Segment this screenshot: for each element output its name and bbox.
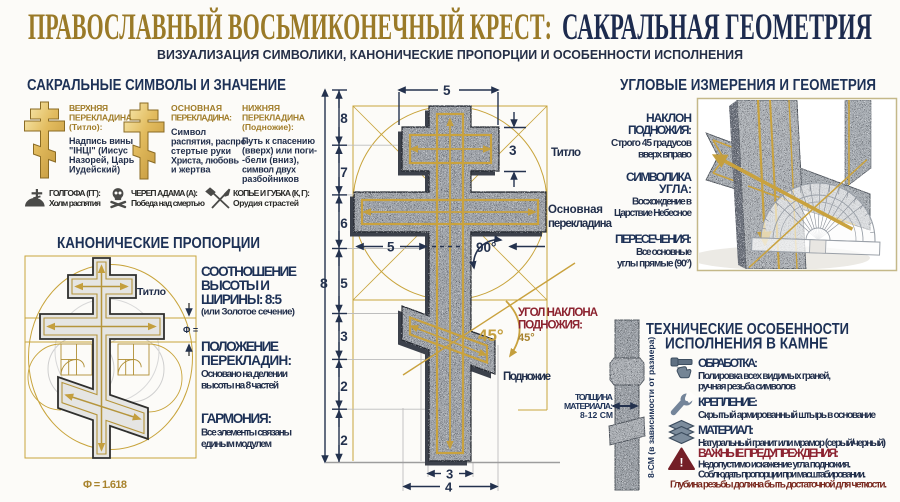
svg-text:8: 8 [340, 111, 348, 126]
svg-text:ВАЖНЫЕ ПРЕДУПРЕЖДЕНИЯ:: ВАЖНЫЕ ПРЕДУПРЕЖДЕНИЯ: [698, 446, 839, 460]
svg-text:Все основные: Все основные [636, 247, 692, 258]
svg-text:Φ =: Φ = [183, 325, 198, 335]
svg-text:ПОДНОЖИЯ:: ПОДНОЖИЯ: [628, 123, 692, 137]
svg-text:(Подножие):: (Подножие): [242, 122, 294, 132]
svg-text:ПОДНОЖИЯ:: ПОДНОЖИЯ: [518, 320, 583, 332]
svg-text:ручная резьба символов: ручная резьба символов [698, 381, 796, 393]
svg-text:8-12 СМ: 8-12 СМ [580, 410, 613, 420]
svg-text:Восхождение в: Восхождение в [632, 197, 692, 208]
svg-text:ПЕРЕКЛАДИНА: ПЕРЕКЛАДИНА [242, 113, 305, 123]
svg-text:Иудейский): Иудейский) [69, 165, 120, 175]
svg-text:и жертва: и жертва [171, 165, 212, 175]
svg-text:ВЫСОТЫ И: ВЫСОТЫ И [201, 278, 270, 293]
svg-text:8: 8 [320, 275, 328, 291]
svg-text:Назорей, Царь: Назорей, Царь [69, 155, 135, 165]
svg-text:!: ! [680, 456, 684, 470]
svg-text:ПЕРЕКЛАДИНА:: ПЕРЕКЛАДИНА: [171, 113, 232, 123]
svg-text:САКРАЛЬНЫЕ СИМВОЛЫ И ЗНАЧЕНИЕ: САКРАЛЬНЫЕ СИМВОЛЫ И ЗНАЧЕНИЕ [27, 77, 286, 94]
svg-text:ГАРМОНИЯ:: ГАРМОНИЯ: [201, 411, 272, 426]
svg-text:вверх вправо: вверх вправо [638, 150, 692, 161]
svg-text:высоты на 8 частей: высоты на 8 частей [201, 381, 279, 392]
svg-text:ПЕРЕКЛАДИН:: ПЕРЕКЛАДИН: [201, 353, 292, 368]
svg-text:6: 6 [340, 216, 348, 231]
svg-text:5: 5 [340, 276, 348, 291]
svg-text:2: 2 [340, 379, 348, 394]
svg-text:ОСНОВНАЯ: ОСНОВНАЯ [171, 103, 222, 113]
svg-text:ИСПОЛНЕНИЯ В КАМНЕ: ИСПОЛНЕНИЯ В КАМНЕ [665, 336, 828, 353]
svg-text:4: 4 [445, 480, 453, 495]
svg-text:УГОЛ НАКЛОНА: УГОЛ НАКЛОНА [518, 307, 598, 319]
svg-text:Строго 45 градусов: Строго 45 градусов [611, 138, 692, 149]
svg-text:КОПЬЕ И ГУБКА (К, Г):: КОПЬЕ И ГУБКА (К, Г): [233, 188, 310, 198]
svg-text:единым модулем: единым модулем [201, 439, 272, 450]
svg-text:Путь к спасению: Путь к спасению [242, 136, 315, 146]
svg-text:3: 3 [340, 329, 348, 344]
svg-text:разбойников: разбойников [242, 174, 299, 184]
svg-text:стертые руки: стертые руки [171, 146, 231, 156]
svg-text:МАТЕРИАЛ:: МАТЕРИАЛ: [698, 423, 754, 437]
svg-text:УГЛА:: УГЛА: [659, 182, 692, 196]
svg-text:СООТНОШЕНИЕ: СООТНОШЕНИЕ [201, 264, 297, 279]
svg-text:(вверх) или поги-: (вверх) или поги- [242, 146, 317, 156]
svg-text:НИЖНЯЯ: НИЖНЯЯ [242, 103, 280, 113]
svg-text:КРЕПЛЕНИЕ:: КРЕПЛЕНИЕ: [698, 395, 758, 409]
svg-text:САКРАЛЬНАЯ ГЕОМЕТРИЯ: САКРАЛЬНАЯ ГЕОМЕТРИЯ [562, 7, 872, 48]
svg-text:Титло: Титло [137, 286, 166, 298]
svg-text:ПЕРЕКЛАДИНА: ПЕРЕКЛАДИНА [69, 113, 132, 123]
svg-text:углы прямые (90°): углы прямые (90°) [617, 259, 692, 270]
svg-text:ПЕРЕСЕЧЕНИЯ:: ПЕРЕСЕЧЕНИЯ: [615, 232, 692, 246]
svg-text:Скрытый армированный штырь в о: Скрытый армированный штырь в основание [698, 410, 876, 421]
svg-text:(Титло):: (Титло): [69, 122, 103, 132]
svg-text:Основано на делении: Основано на делении [201, 369, 288, 380]
svg-text:45°: 45° [518, 332, 535, 344]
svg-text:ВИЗУАЛИЗАЦИЯ СИМВОЛИКИ, КАНОНИ: ВИЗУАЛИЗАЦИЯ СИМВОЛИКИ, КАНОНИЧЕСКИЕ ПРО… [157, 47, 743, 62]
svg-text:3: 3 [509, 143, 517, 158]
svg-text:-бели (вниз),: -бели (вниз), [242, 155, 299, 165]
svg-text:Холм распятия: Холм распятия [49, 198, 101, 208]
svg-text:распятия, распро-: распятия, распро- [171, 137, 249, 147]
svg-text:"ІНЦІ" (Иисус: "ІНЦІ" (Иисус [69, 146, 128, 156]
svg-text:Основная: Основная [548, 204, 603, 216]
svg-text:Все элементы связаны: Все элементы связаны [201, 428, 292, 439]
svg-text:Символ: Символ [171, 127, 206, 137]
svg-text:Надпись вины: Надпись вины [69, 136, 133, 146]
svg-text:ГОЛГОФА (ГГ):: ГОЛГОФА (ГГ): [49, 188, 101, 198]
svg-text:2: 2 [340, 433, 348, 448]
svg-text:Φ = 1.618: Φ = 1.618 [83, 479, 127, 491]
svg-text:Победа над смертью: Победа над смертью [131, 198, 205, 208]
svg-text:45°: 45° [478, 326, 504, 345]
svg-text:(или Золотое сечение): (или Золотое сечение) [201, 307, 295, 318]
svg-text:УГЛОВЫЕ ИЗМЕРЕНИЯ И ГЕОМЕТРИЯ: УГЛОВЫЕ ИЗМЕРЕНИЯ И ГЕОМЕТРИЯ [620, 77, 876, 94]
svg-text:Полировка всех видимых граней,: Полировка всех видимых граней, [698, 371, 831, 382]
svg-text:7: 7 [340, 165, 348, 180]
svg-text:ЧЕРЕП АДАМА (А):: ЧЕРЕП АДАМА (А): [131, 188, 198, 198]
svg-text:5: 5 [443, 83, 451, 98]
svg-text:Глубина резьбы должна быть дос: Глубина резьбы должна быть достаточной д… [670, 479, 887, 491]
svg-text:8-СМ (в зависимости от размера: 8-СМ (в зависимости от размера) [646, 337, 656, 478]
svg-text:Подножие: Подножие [503, 371, 551, 383]
svg-text:5: 5 [387, 240, 395, 255]
svg-text:символ двух: символ двух [242, 165, 296, 175]
svg-text:ШИРИНЫ: 8:5: ШИРИНЫ: 8:5 [201, 292, 282, 307]
svg-text:ВЕРХНЯЯ: ВЕРХНЯЯ [69, 103, 108, 113]
svg-text:Царствие Небесное: Царствие Небесное [614, 207, 692, 219]
svg-text:КАНОНИЧЕСКИЕ ПРОПОРЦИИ: КАНОНИЧЕСКИЕ ПРОПОРЦИИ [57, 235, 260, 252]
svg-text:ПОЛОЖЕНИЕ: ПОЛОЖЕНИЕ [201, 339, 279, 354]
svg-text:ОБРАБОТКА:: ОБРАБОТКА: [698, 356, 758, 370]
svg-text:перекладина: перекладина [548, 218, 613, 230]
svg-text:ПРАВОСЛАВНЫЙ ВОСЬМИКОНЕЧНЫЙ КР: ПРАВОСЛАВНЫЙ ВОСЬМИКОНЕЧНЫЙ КРЕСТ: [28, 6, 552, 48]
svg-text:Орудия страстей: Орудия страстей [233, 198, 299, 208]
svg-text:Титло: Титло [551, 147, 581, 159]
